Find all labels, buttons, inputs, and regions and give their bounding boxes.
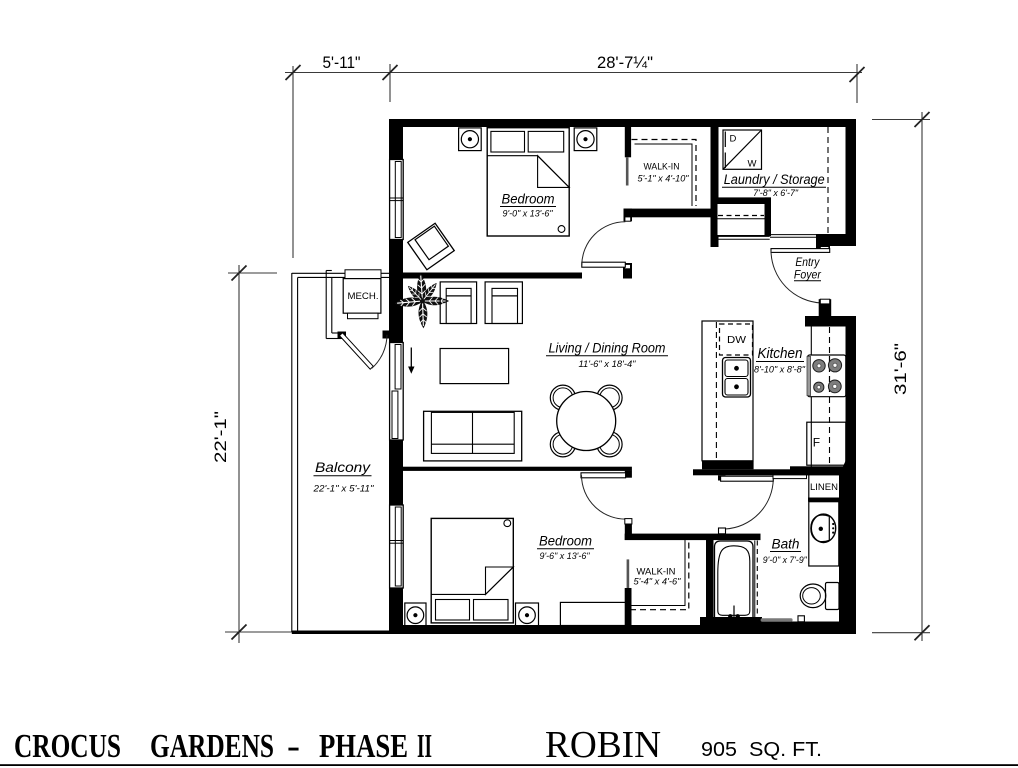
svg-text:W: W	[748, 159, 757, 170]
svg-text:LINEN: LINEN	[810, 482, 838, 493]
svg-text:22'-1": 22'-1"	[211, 411, 230, 463]
svg-text:Foyer: Foyer	[794, 269, 822, 281]
svg-text:F: F	[813, 436, 820, 450]
svg-text:5'-4" x 4'-6": 5'-4" x 4'-6"	[634, 577, 682, 587]
svg-text:DW: DW	[727, 335, 747, 346]
svg-text:WALK-IN: WALK-IN	[637, 567, 676, 577]
svg-text:Entry: Entry	[795, 257, 820, 269]
svg-text:CROCUS: CROCUS	[14, 728, 121, 765]
svg-text:WALK-IN: WALK-IN	[644, 161, 680, 171]
svg-text:11'-6" x 18'-4": 11'-6" x 18'-4"	[579, 359, 637, 370]
svg-text:Laundry / Storage: Laundry / Storage	[724, 172, 825, 187]
svg-text:9'-0" x 13'-6": 9'-0" x 13'-6"	[503, 209, 554, 220]
svg-text:7'-8" x 6'-7": 7'-8" x 6'-7"	[753, 188, 799, 199]
svg-text:II: II	[417, 728, 432, 765]
svg-text:28'-7¼": 28'-7¼"	[597, 53, 653, 72]
svg-text:D: D	[730, 134, 737, 145]
svg-text:22'-1" x 5'-11": 22'-1" x 5'-11"	[312, 484, 374, 495]
svg-text:9'-6" x 13'-6": 9'-6" x 13'-6"	[540, 551, 591, 562]
svg-text:ROBIN: ROBIN	[545, 724, 661, 766]
svg-text:Balcony: Balcony	[315, 459, 371, 475]
svg-text:Bath: Bath	[772, 537, 800, 552]
svg-text:9'-0" x 7'-9": 9'-0" x 7'-9"	[763, 555, 808, 566]
svg-text:Bedroom: Bedroom	[502, 191, 555, 207]
svg-text:8'-10" x 8'-8": 8'-10" x 8'-8"	[754, 364, 806, 375]
svg-text:Living / Dining Room: Living / Dining Room	[549, 340, 666, 356]
svg-text:Bedroom: Bedroom	[539, 533, 592, 549]
svg-text:Kitchen: Kitchen	[758, 346, 803, 362]
svg-text:905 SQ. FT.: 905 SQ. FT.	[701, 739, 822, 761]
svg-text:31'-6": 31'-6"	[891, 343, 910, 395]
svg-text:5'-1" x 4'-10": 5'-1" x 4'-10"	[638, 173, 690, 183]
svg-text:-: -	[287, 728, 300, 765]
svg-text:GARDENS: GARDENS	[150, 728, 274, 765]
svg-text:PHASE: PHASE	[319, 728, 408, 765]
svg-text:5'-11": 5'-11"	[323, 53, 361, 72]
svg-text:MECH.: MECH.	[348, 291, 379, 301]
